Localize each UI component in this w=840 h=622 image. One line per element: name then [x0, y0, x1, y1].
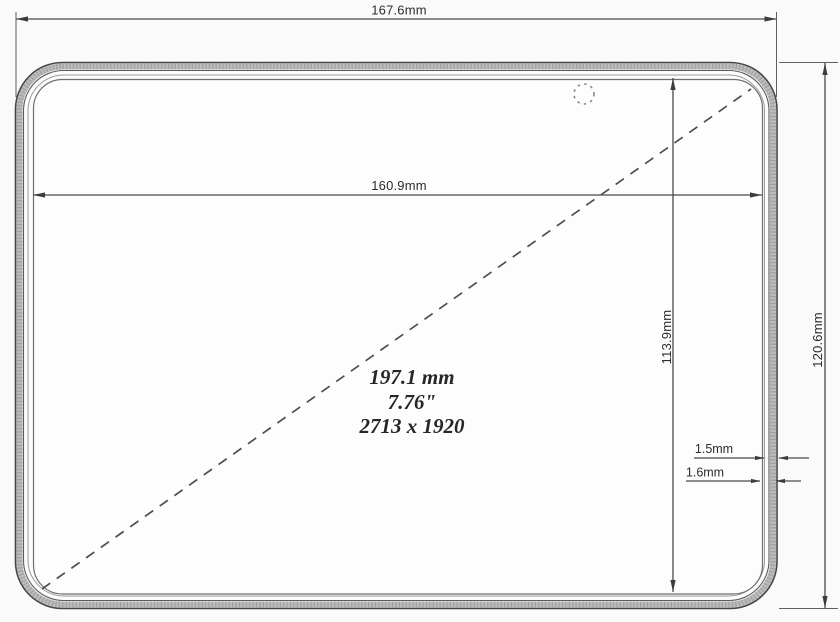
dimension-drawing: 167.6mm 160.9mm 113.9mm 120.6mm 197.1 mm… [0, 0, 840, 622]
diagonal-mm-label: 197.1 mm [369, 365, 454, 389]
diagonal-inches-label: 7.76" [388, 390, 436, 414]
outer-width-label: 167.6mm [371, 3, 427, 18]
bezel-side-label: 1.5mm [695, 442, 733, 456]
screen-height-label: 113.9mm [659, 310, 674, 365]
arrow-left-icon [779, 456, 789, 460]
outer-height-label: 120.6mm [810, 312, 825, 368]
arrow-up-icon [822, 63, 827, 75]
arrow-left-icon [16, 16, 28, 21]
resolution-label: 2713 x 1920 [359, 414, 466, 438]
dim-outer-height: 120.6mm [779, 63, 838, 609]
screen-active-area [34, 80, 763, 595]
bezel-edge-label: 1.6mm [686, 466, 724, 480]
arrow-right-icon [765, 16, 777, 21]
drawing-svg: 167.6mm 160.9mm 113.9mm 120.6mm 197.1 mm… [0, 0, 840, 622]
arrow-down-icon [822, 596, 827, 608]
screen-width-label: 160.9mm [371, 178, 427, 193]
